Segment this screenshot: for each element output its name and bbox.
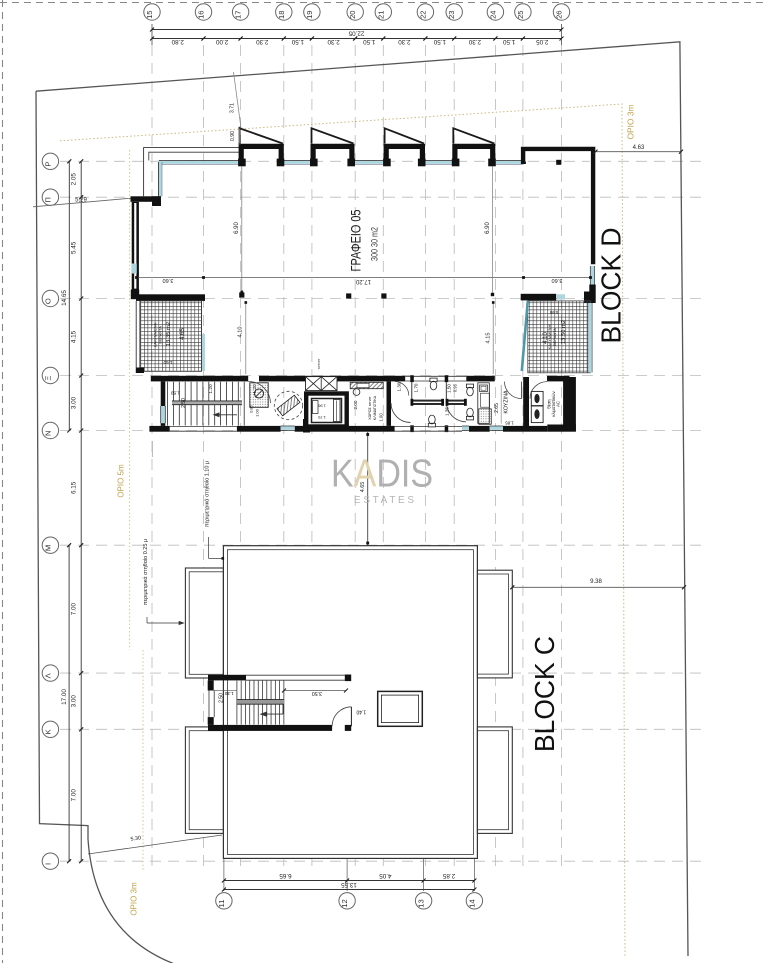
svg-text:1.30: 1.30 (397, 382, 402, 391)
svg-text:19: 19 (305, 10, 314, 18)
svg-text:2.85: 2.85 (442, 872, 455, 879)
svg-text:2.00: 2.00 (353, 400, 358, 409)
svg-text:14: 14 (467, 899, 476, 907)
svg-text:ΟΡΙΟ 5m: ΟΡΙΟ 5m (117, 464, 126, 498)
svg-text:300 30 m2: 300 30 m2 (370, 227, 380, 261)
svg-text:17.20: 17.20 (355, 278, 371, 284)
svg-text:BLOCK D: BLOCK D (596, 228, 627, 344)
svg-text:server: server (317, 358, 321, 369)
svg-text:4.10: 4.10 (543, 332, 549, 344)
svg-text:1.50: 1.50 (363, 38, 376, 45)
svg-text:5.45: 5.45 (71, 241, 78, 254)
svg-text:2.50: 2.50 (181, 398, 187, 408)
svg-text:Π: Π (43, 197, 52, 202)
svg-text:1.90: 1.90 (317, 404, 326, 409)
svg-text:ΧΩΡΟΣ server: ΧΩΡΟΣ server (368, 395, 372, 419)
svg-text:4.63: 4.63 (633, 145, 645, 151)
svg-text:13: 13 (417, 899, 426, 907)
svg-text:1.40: 1.40 (356, 709, 366, 715)
svg-text:2.30: 2.30 (256, 38, 269, 45)
svg-text:3.00: 3.00 (71, 396, 78, 409)
svg-text:20: 20 (348, 10, 357, 18)
svg-text:11: 11 (217, 900, 226, 908)
svg-text:3.50: 3.50 (312, 690, 322, 696)
svg-text:BLOCK C: BLOCK C (529, 636, 560, 752)
svg-text:7.00: 7.00 (71, 603, 78, 616)
svg-text:23: 23 (447, 10, 456, 18)
svg-text:2.30: 2.30 (398, 38, 411, 45)
svg-text:4.10: 4.10 (238, 327, 244, 338)
svg-text:0.85: 0.85 (249, 404, 254, 413)
svg-text:1.85: 1.85 (505, 421, 514, 426)
svg-text:5,29: 5,29 (75, 198, 87, 204)
svg-text:16: 16 (197, 10, 206, 18)
svg-text:M: M (43, 545, 52, 551)
svg-text:0.95: 0.95 (453, 383, 458, 392)
svg-text:2.30: 2.30 (468, 38, 481, 45)
svg-text:ΟΡΙΟ 3m: ΟΡΙΟ 3m (130, 882, 139, 916)
svg-text:3.00: 3.00 (71, 695, 78, 708)
svg-text:24: 24 (488, 10, 497, 18)
svg-text:21: 21 (376, 10, 385, 18)
svg-text:1.50: 1.50 (433, 38, 446, 45)
svg-text:ΚΟΥΖΙΝΑ: ΚΟΥΖΙΝΑ (504, 390, 510, 414)
svg-text:13.50 m2: 13.50 m2 (561, 320, 567, 344)
svg-text:15: 15 (145, 10, 154, 18)
svg-text:6.65: 6.65 (279, 872, 292, 879)
svg-text:3.60: 3.60 (163, 277, 174, 283)
svg-text:13.35 m2: 13.35 m2 (166, 322, 172, 346)
svg-text:26: 26 (555, 10, 564, 18)
svg-text:25: 25 (516, 10, 525, 18)
svg-text:ΟΡΙΟ 3m: ΟΡΙΟ 3m (626, 105, 636, 140)
svg-text:4.15: 4.15 (71, 330, 78, 343)
svg-text:ΒΕΡΑΝΤΑ: ΒΕΡΑΝΤΑ (552, 328, 557, 346)
svg-text:1.50: 1.50 (171, 390, 181, 396)
svg-text:9.38: 9.38 (590, 579, 602, 585)
svg-text:1.60: 1.60 (163, 360, 172, 365)
svg-text:K: K (43, 729, 52, 734)
svg-text:1.00: 1.00 (255, 408, 260, 417)
svg-text:6.15: 6.15 (71, 481, 78, 494)
svg-text:0.90: 0.90 (230, 131, 236, 141)
svg-text:περιμετρικά στηθαίο 1.10 μ: περιμετρικά στηθαίο 1.10 μ (203, 461, 210, 527)
svg-text:4.15: 4.15 (486, 333, 492, 344)
svg-text:1.20: 1.20 (208, 384, 214, 394)
svg-text:7.00: 7.00 (71, 789, 78, 802)
svg-text:Ξ: Ξ (43, 376, 52, 381)
svg-text:ΓΡΑΦΕΙΟ 05: ΓΡΑΦΕΙΟ 05 (348, 209, 364, 271)
svg-text:2.50: 2.50 (218, 693, 224, 703)
svg-text:1.00: 1.00 (378, 413, 383, 422)
svg-text:3.60: 3.60 (552, 277, 563, 283)
svg-text:2.30: 2.30 (327, 38, 340, 45)
svg-text:2.65: 2.65 (494, 403, 500, 413)
svg-text:1.70: 1.70 (414, 383, 419, 392)
svg-text:2.05: 2.05 (536, 38, 549, 45)
svg-text:1.50: 1.50 (291, 38, 304, 45)
svg-text:ΒΕΡΑΝΤΑ: ΒΕΡΑΝΤΑ (158, 326, 163, 344)
svg-text:0.95: 0.95 (549, 310, 558, 315)
svg-text:περιμετρικά στηθαίο 0.25 μ: περιμετρικά στηθαίο 0.25 μ (142, 539, 149, 605)
svg-text:AC: AC (556, 401, 561, 407)
svg-text:1.50: 1.50 (503, 38, 516, 45)
svg-text:E S T A T E S: E S T A T E S (354, 494, 414, 506)
svg-text:1.70: 1.70 (317, 415, 326, 420)
svg-text:I: I (43, 863, 52, 865)
svg-text:4.65: 4.65 (180, 328, 186, 340)
svg-text:12: 12 (340, 899, 349, 907)
svg-text:13.55: 13.55 (341, 881, 357, 888)
svg-text:KADIS: KADIS (331, 453, 433, 496)
svg-text:1.30: 1.30 (224, 691, 233, 696)
svg-text:14.65: 14.65 (61, 290, 68, 306)
svg-text:2.80: 2.80 (171, 38, 184, 45)
svg-text:N: N (43, 430, 52, 435)
svg-text:22: 22 (418, 10, 427, 18)
svg-text:6.90: 6.90 (485, 222, 491, 234)
svg-text:17: 17 (234, 10, 243, 18)
svg-text:18: 18 (277, 10, 286, 18)
svg-text:22.05: 22.05 (348, 29, 364, 36)
svg-text:2.05: 2.05 (71, 173, 78, 186)
svg-text:6.90: 6.90 (234, 222, 240, 234)
svg-text:1.50: 1.50 (446, 384, 451, 393)
svg-text:O: O (43, 298, 52, 304)
svg-text:3.71: 3.71 (230, 103, 236, 113)
svg-text:17.00: 17.00 (61, 689, 68, 705)
svg-text:1.35: 1.35 (445, 407, 450, 416)
svg-text:2.00: 2.00 (215, 38, 228, 45)
svg-text:4.05: 4.05 (379, 872, 392, 879)
svg-text:P: P (43, 161, 52, 166)
svg-text:ΚΛΙΜΑΤΙΣΤΙΚΑ: ΚΛΙΜΑΤΙΣΤΙΚΑ (373, 395, 377, 420)
